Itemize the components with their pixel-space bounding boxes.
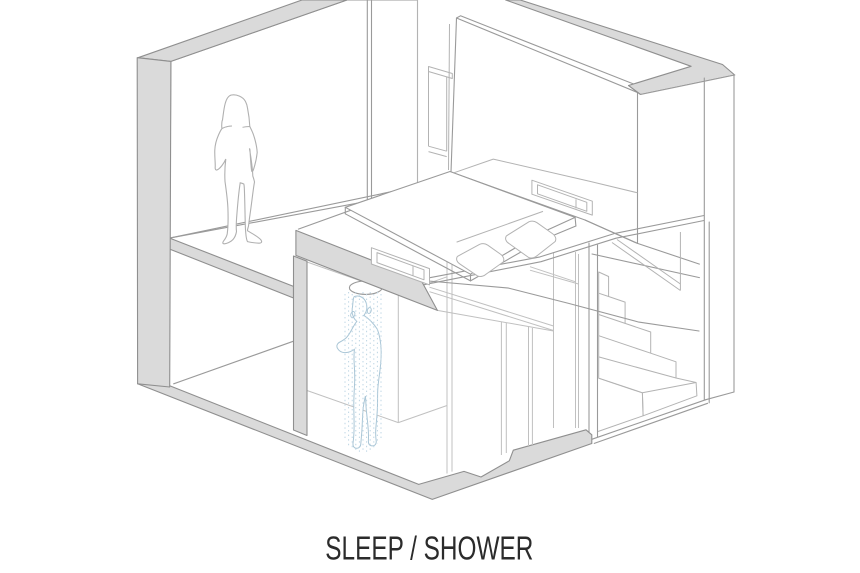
svg-text:SLEEP / SHOWER: SLEEP / SHOWER	[325, 530, 533, 567]
